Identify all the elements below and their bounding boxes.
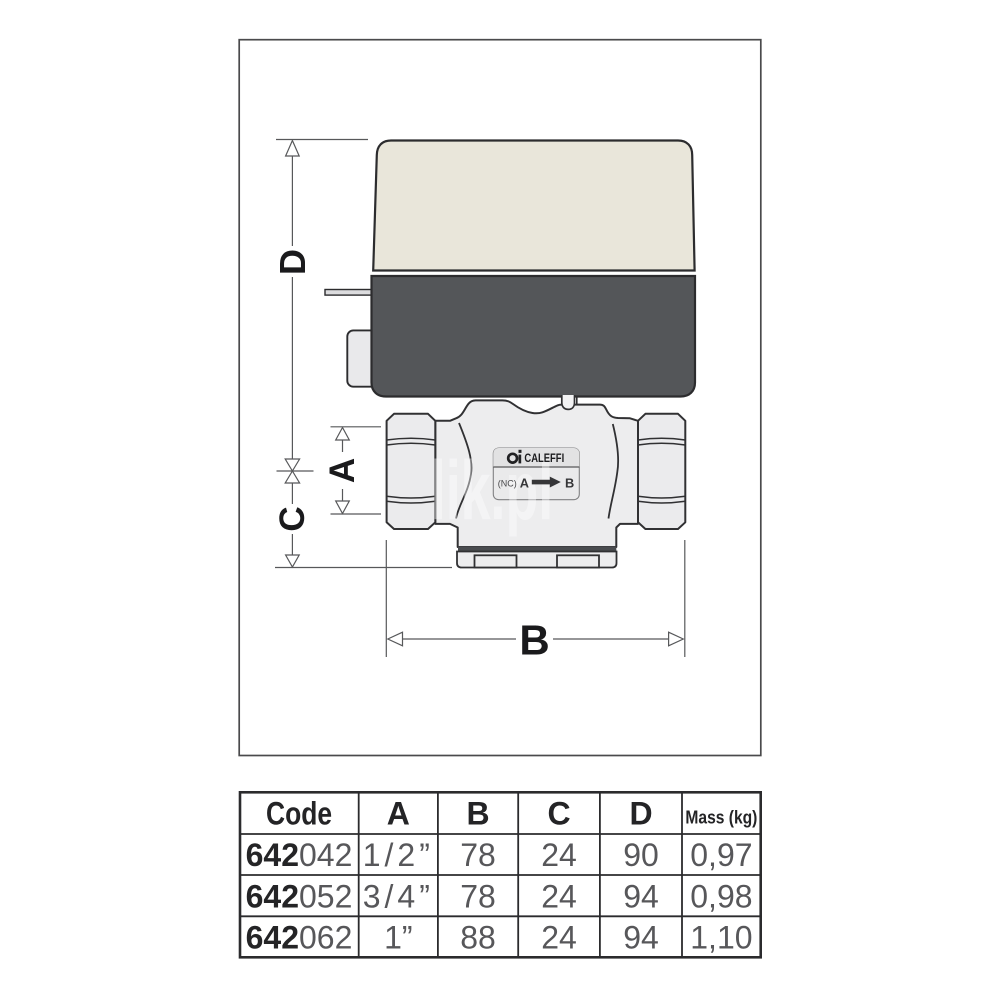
svg-text:78: 78 <box>460 837 496 873</box>
svg-text:642052: 642052 <box>246 878 353 914</box>
svg-text:CALEFFI: CALEFFI <box>524 451 564 465</box>
svg-text:C: C <box>547 796 570 832</box>
svg-text:Code: Code <box>266 796 332 832</box>
svg-text:90: 90 <box>623 837 659 873</box>
svg-text:B: B <box>466 796 489 832</box>
svg-text:642062: 642062 <box>246 920 353 956</box>
svg-text:94: 94 <box>623 878 659 914</box>
svg-text:1/2”: 1/2” <box>363 837 434 873</box>
svg-text:0,97: 0,97 <box>690 837 752 873</box>
svg-text:3/4”: 3/4” <box>363 878 434 914</box>
svg-text:A: A <box>387 796 410 832</box>
svg-text:A: A <box>520 475 529 490</box>
svg-text:24: 24 <box>541 878 577 914</box>
svg-text:Mass (kg): Mass (kg) <box>685 808 757 828</box>
svg-text:1,10: 1,10 <box>690 920 752 956</box>
svg-text:D: D <box>272 249 313 275</box>
svg-text:B: B <box>519 617 549 664</box>
svg-text:24: 24 <box>541 837 577 873</box>
svg-text:B: B <box>565 475 574 490</box>
svg-text:1”: 1” <box>384 920 412 956</box>
svg-text:0,98: 0,98 <box>690 878 752 914</box>
svg-text:A: A <box>323 458 362 483</box>
svg-text:C: C <box>273 506 312 531</box>
svg-text:D: D <box>629 796 652 832</box>
svg-text:642042: 642042 <box>246 837 353 873</box>
svg-text:88: 88 <box>460 920 496 956</box>
svg-text:(NC): (NC) <box>498 479 517 489</box>
svg-text:78: 78 <box>460 878 496 914</box>
svg-text:94: 94 <box>623 920 659 956</box>
svg-text:24: 24 <box>541 920 577 956</box>
